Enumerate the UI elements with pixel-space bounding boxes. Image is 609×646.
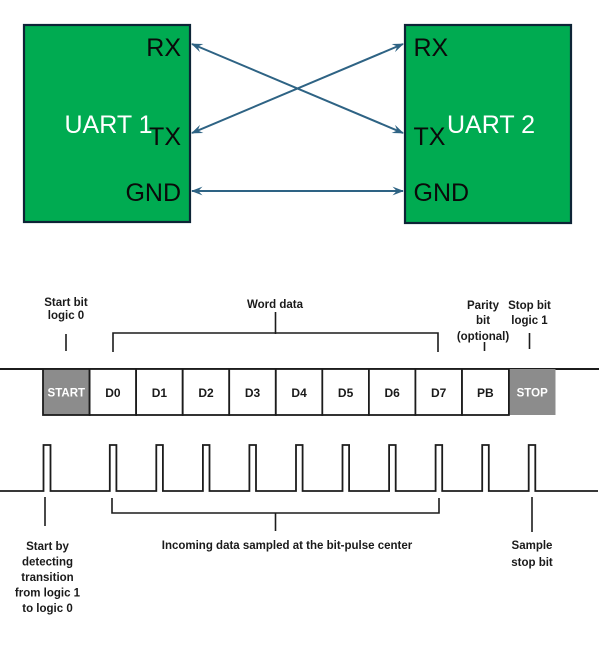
svg-text:Start bit: Start bit [44,297,88,309]
svg-text:UART 1: UART 1 [65,111,153,139]
svg-text:detecting: detecting [22,557,73,569]
svg-text:transition: transition [21,572,73,584]
svg-text:from logic 1: from logic 1 [15,588,81,600]
svg-text:D1: D1 [152,386,168,400]
svg-text:D7: D7 [431,386,447,400]
svg-text:logic 0: logic 0 [48,310,84,322]
svg-text:Parity: Parity [467,300,500,312]
svg-text:stop bit: stop bit [511,557,553,569]
svg-text:D4: D4 [291,386,307,400]
svg-text:GND: GND [125,179,181,207]
svg-text:(optional): (optional) [457,331,510,343]
svg-text:RX: RX [414,34,449,62]
svg-text:UART 2: UART 2 [447,111,535,139]
svg-text:RX: RX [146,34,181,62]
svg-text:Sample: Sample [512,540,553,552]
svg-text:TX: TX [149,123,181,151]
svg-text:D6: D6 [385,386,401,400]
svg-text:Incoming data sampled at the b: Incoming data sampled at the bit-pulse c… [162,540,413,552]
svg-text:D2: D2 [198,386,214,400]
svg-text:Word data: Word data [247,299,304,311]
svg-text:TX: TX [414,123,446,151]
svg-text:GND: GND [414,179,470,207]
svg-text:bit: bit [476,315,490,327]
svg-text:D3: D3 [245,386,261,400]
svg-text:logic 1: logic 1 [511,315,548,327]
svg-text:STOP: STOP [517,388,548,400]
svg-text:D0: D0 [105,386,121,400]
svg-text:START: START [48,388,85,400]
svg-text:PB: PB [477,386,494,400]
svg-text:Start by: Start by [26,541,69,553]
svg-text:Stop bit: Stop bit [508,300,551,312]
svg-text:to logic 0: to logic 0 [22,603,72,615]
svg-text:D5: D5 [338,386,354,400]
